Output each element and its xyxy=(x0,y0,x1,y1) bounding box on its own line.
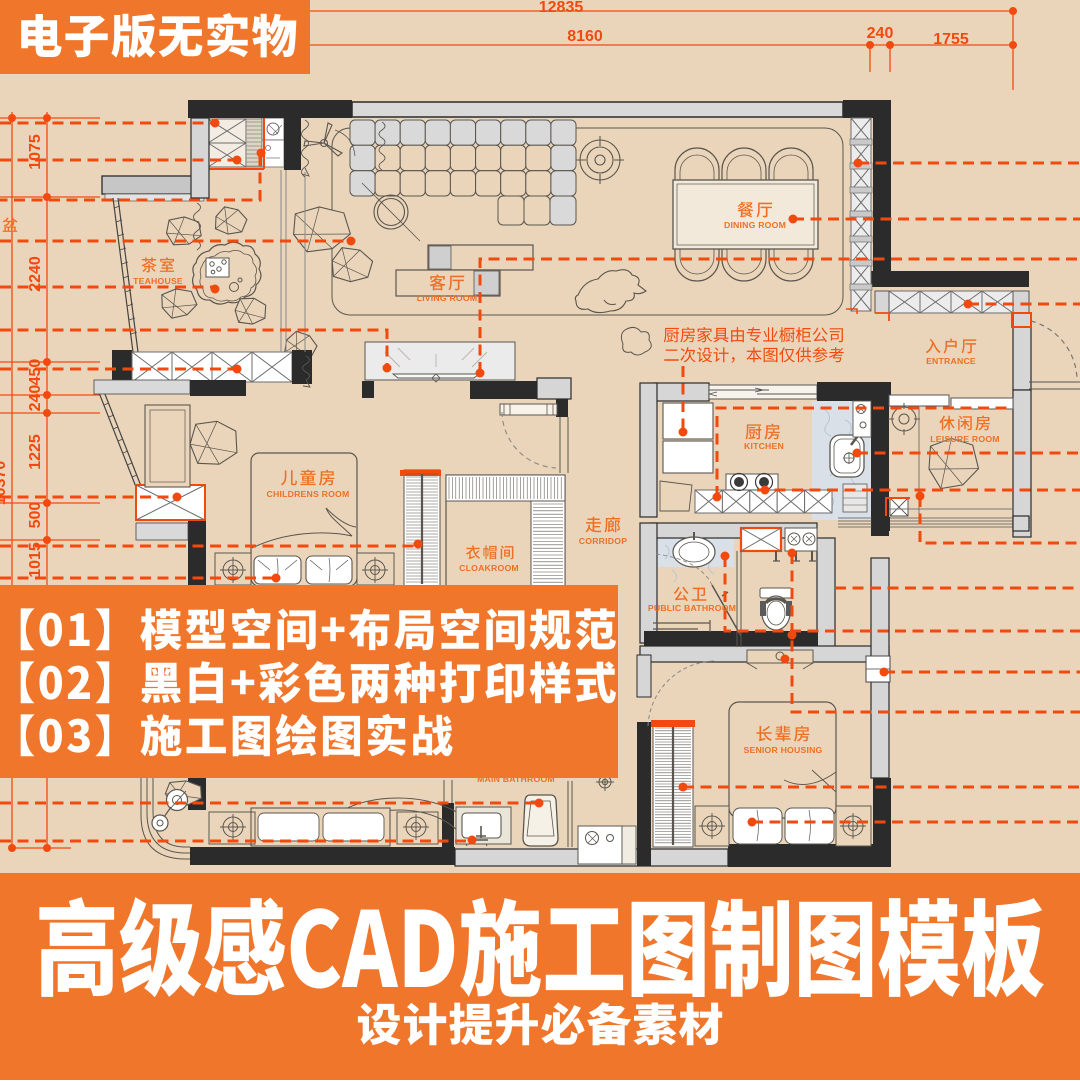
svg-text:CHILDRENS ROOM: CHILDRENS ROOM xyxy=(267,489,350,499)
svg-text:PUBLIC BATHROOM: PUBLIC BATHROOM xyxy=(648,603,736,613)
svg-text:LEISURE ROOM: LEISURE ROOM xyxy=(930,434,1000,444)
svg-text:450: 450 xyxy=(27,359,44,386)
svg-text:1755: 1755 xyxy=(933,31,969,48)
svg-text:SENIOR HOUSING: SENIOR HOUSING xyxy=(743,745,822,755)
svg-text:12835: 12835 xyxy=(539,0,584,16)
svg-text:KITCHEN: KITCHEN xyxy=(744,441,784,451)
svg-text:ENTRANCE: ENTRANCE xyxy=(926,356,976,366)
svg-text:CORRIDOP: CORRIDOP xyxy=(579,536,627,546)
svg-text:240: 240 xyxy=(27,385,44,412)
svg-text:TEAHOUSE: TEAHOUSE xyxy=(133,276,183,286)
svg-text:LIVING ROOM: LIVING ROOM xyxy=(417,293,478,303)
svg-text:240: 240 xyxy=(867,25,894,42)
svg-text:10370: 10370 xyxy=(0,461,9,506)
svg-text:8160: 8160 xyxy=(567,28,603,45)
svg-text:1075: 1075 xyxy=(27,134,44,170)
svg-text:CLOAKROOM: CLOAKROOM xyxy=(459,563,519,573)
svg-text:1225: 1225 xyxy=(27,434,44,470)
svg-text:DINING ROOM: DINING ROOM xyxy=(724,220,786,230)
svg-text:500: 500 xyxy=(27,502,44,529)
